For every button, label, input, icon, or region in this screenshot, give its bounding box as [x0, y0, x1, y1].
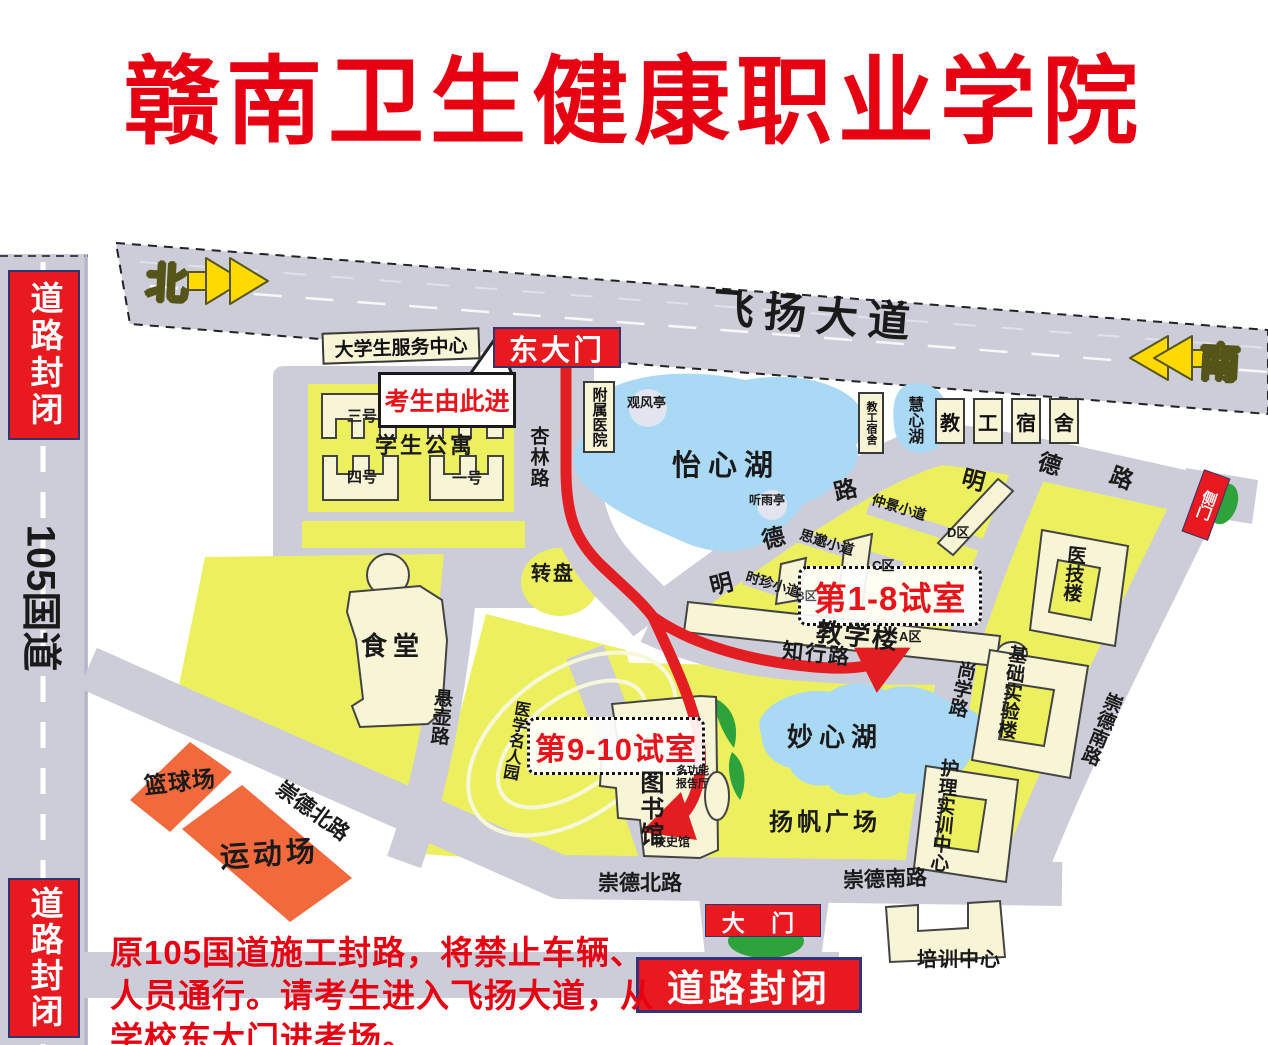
- apartment-no1-label: 一号: [452, 471, 482, 487]
- road-closed-sign-center: 道路封闭: [636, 957, 862, 1013]
- staff-dorm-box-3: 宿: [1011, 398, 1041, 444]
- campus-map: 赣南卫生健康职业学院 北 南 飞扬大道 道路封闭 道路封闭 105国道 大学生服…: [0, 0, 1268, 1045]
- lake-yixin-label: 怡心湖: [672, 451, 780, 482]
- multi-hall-label-1: 多功能: [676, 766, 709, 778]
- compass-south-label: 南: [1199, 330, 1242, 390]
- road-label-chongde-south-bottom: 崇德南路: [843, 868, 928, 894]
- apartments-label: 学生公寓: [375, 434, 475, 458]
- staff-dorm-box-1: 教: [935, 398, 965, 444]
- canteen-label: 食堂: [361, 632, 425, 660]
- zone-d-label: D区: [947, 526, 969, 540]
- roundabout-label: 转盘: [531, 564, 575, 586]
- road-closed-sign-top: 道路封闭: [8, 270, 80, 440]
- road-label-chongde-north-bottom: 崇德北路: [598, 873, 682, 896]
- road-label-xinglin: 杏林路: [527, 426, 548, 489]
- road-closed-sign-bottom: 道路封闭: [8, 878, 80, 1038]
- road-label-xuanhu: 悬壶路: [427, 687, 452, 746]
- staff-dorm-box-2: 工: [973, 398, 1003, 444]
- entry-callout: 考生由此进: [378, 372, 516, 428]
- compass-north-label: 北: [144, 249, 189, 312]
- yangfan-square-label: 扬帆广场: [769, 810, 881, 836]
- zone-b-label: B区: [796, 590, 817, 603]
- staff-dorm-small: 教工宿舍: [858, 392, 884, 454]
- history-hall-label: 校史馆: [654, 836, 690, 849]
- training-center-label: 培训中心: [917, 950, 1001, 972]
- apartment-no4-label: 四号: [347, 470, 377, 486]
- multi-hall-label-2: 报告厅: [676, 779, 709, 791]
- staff-dorm-box-4: 舍: [1049, 398, 1079, 444]
- zone-c-label: C区: [872, 559, 894, 573]
- east-gate-sign: 东大门: [493, 327, 621, 368]
- notice-line-3: 学校东大门进考场。: [110, 1012, 416, 1045]
- notice-line-1: 原105国道施工封路，将禁止车辆、: [110, 926, 644, 974]
- main-gate-sign: 大 门: [705, 904, 821, 937]
- pavilion-tingyu-label: 听雨亭: [749, 494, 785, 507]
- lake-huixin-label: 慧心湖: [905, 396, 922, 444]
- student-service-center: 大学生服务中心: [321, 327, 480, 364]
- lake-miaoxin-label: 妙心湖: [787, 723, 883, 751]
- pavilion-guanfeng-label: 观风亭: [627, 396, 666, 410]
- affiliated-hospital: 附属医院: [583, 381, 615, 453]
- apartment-no3-label: 三号: [347, 409, 377, 425]
- zone-a-label: A区: [899, 630, 921, 644]
- medical-tech-label: 医技楼: [1059, 544, 1085, 603]
- notice-line-2: 人员通行。请考生进入飞扬大道，从: [110, 969, 654, 1017]
- road-label-105: 105国道: [18, 525, 61, 672]
- page-title: 赣南卫生健康职业学院: [0, 24, 1268, 163]
